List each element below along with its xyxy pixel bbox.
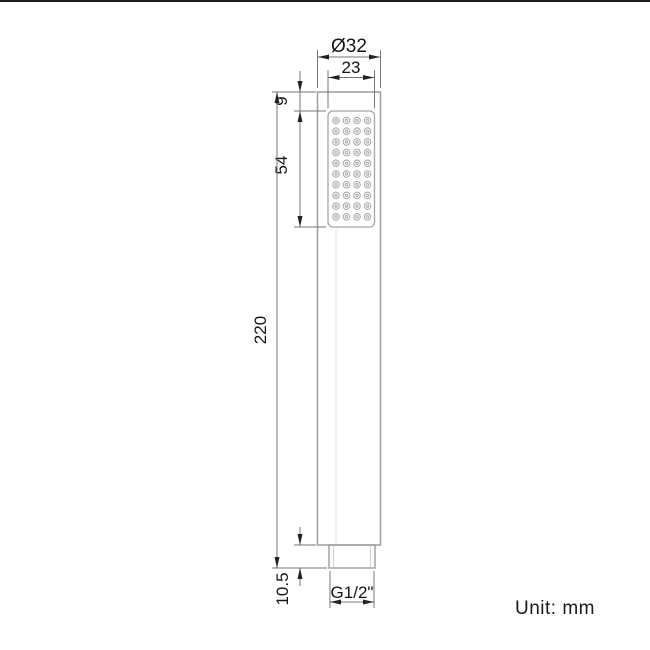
- dim-label-face-height-54: 54: [272, 156, 291, 175]
- top-border-line: [0, 0, 650, 2]
- unit-note: Unit: mm: [505, 598, 605, 620]
- shower-wand-body: [318, 92, 381, 545]
- dim-label-face-width-23: 23: [342, 58, 361, 77]
- dim-label-overall-220: 220: [251, 316, 270, 344]
- dim-label-thread-g12: G1/2": [331, 583, 374, 602]
- dim-connector-10-5: [298, 527, 303, 586]
- dim-label-connector-10-5: 10.5: [273, 572, 292, 605]
- dim-label-offset-9: 9: [272, 96, 291, 105]
- dim-label-diameter-32: Ø32: [331, 36, 367, 57]
- technical-drawing: Ø32 23 9 54: [0, 0, 650, 650]
- dim-chain-9-54: [298, 71, 303, 227]
- thread-connector: [329, 545, 375, 568]
- drawing-canvas: Ø32 23 9 54: [0, 0, 650, 650]
- nozzle-grid: [333, 117, 371, 220]
